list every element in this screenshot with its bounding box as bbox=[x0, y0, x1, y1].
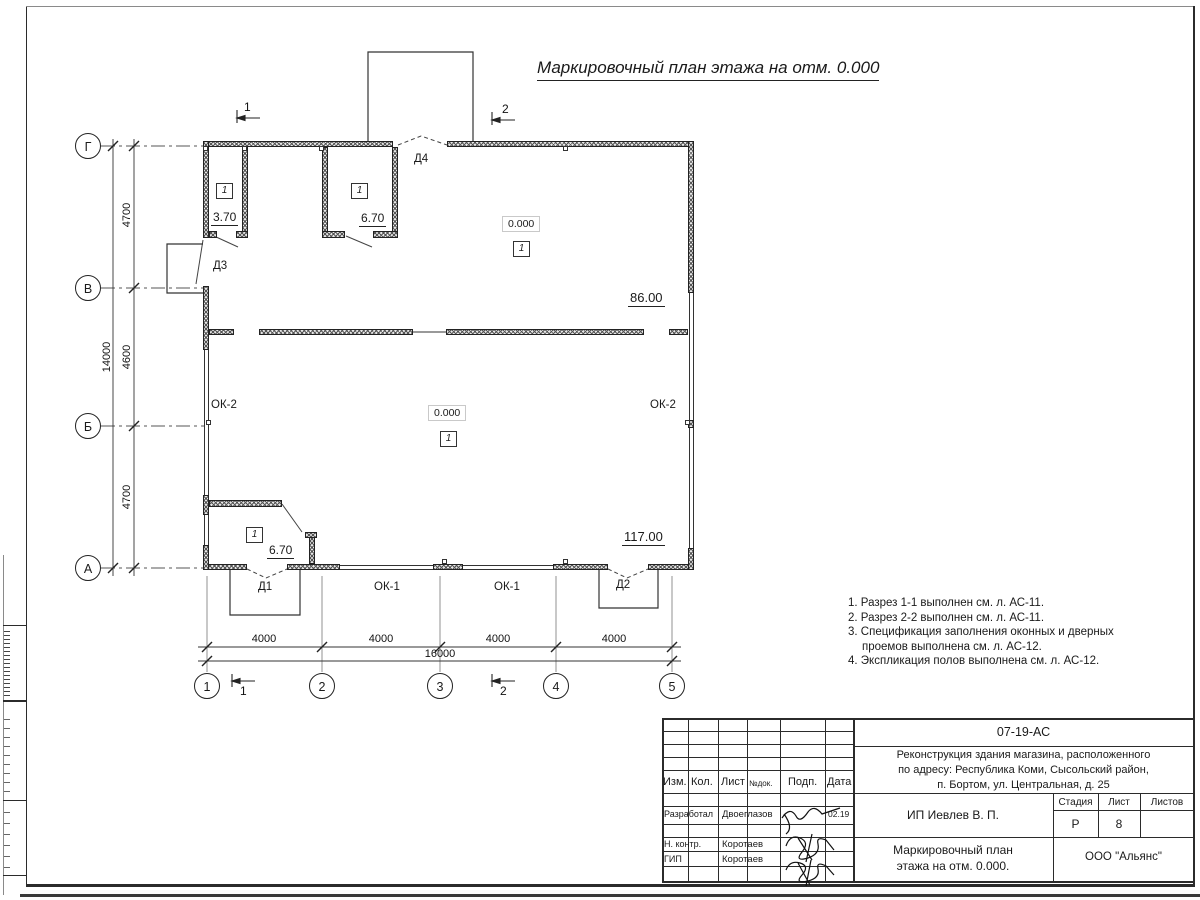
room-number-badge: 1 bbox=[351, 183, 368, 199]
window-ok2 bbox=[204, 515, 209, 545]
wall-segment bbox=[322, 147, 328, 238]
room-area: 6.70 bbox=[267, 543, 294, 559]
wall-segment bbox=[322, 231, 345, 238]
wall-segment bbox=[688, 548, 694, 570]
window-ok2 bbox=[689, 293, 694, 420]
tb-header-izm: Изм. bbox=[663, 776, 687, 788]
axis-bubble-3: 3 bbox=[427, 673, 453, 699]
door-label-d3: Д3 bbox=[213, 260, 227, 272]
wall-segment bbox=[392, 147, 398, 238]
wall-segment bbox=[259, 329, 413, 335]
elevation-mark: 0.000 bbox=[502, 216, 540, 232]
note-line: проемов выполнена см. л. АС-12. bbox=[848, 640, 1114, 655]
window-label-ok1: ОК-1 bbox=[374, 581, 400, 593]
wall-marker bbox=[442, 559, 447, 564]
tb-company: ООО "Альянс" bbox=[1053, 851, 1194, 863]
tb-drawing-title-line: этажа на отм. 0.000. bbox=[853, 859, 1053, 873]
wall-segment bbox=[669, 329, 688, 335]
tb-stage-value: Р bbox=[1053, 817, 1098, 831]
section-mark-number: 1 bbox=[240, 684, 247, 698]
tb-project-line: п. Бортом, ул. Центральная, д. 25 bbox=[853, 779, 1194, 791]
tb-line bbox=[662, 881, 1194, 883]
wall-segment bbox=[373, 231, 398, 238]
tb-header-ndok: №док. bbox=[749, 779, 772, 788]
note-line: 3. Спецификация заполнения оконных и две… bbox=[848, 625, 1114, 640]
tb-name: Коротаев bbox=[722, 854, 763, 865]
tb-line bbox=[662, 770, 853, 771]
axis-bubble-v: В bbox=[75, 275, 101, 301]
wall-segment bbox=[242, 147, 248, 238]
tb-stage-header: Стадия bbox=[1053, 797, 1098, 808]
tb-line bbox=[662, 757, 853, 758]
note-line: 1. Разрез 1-1 выполнен см. л. АС-11. bbox=[848, 596, 1114, 611]
room-area: 86.00 bbox=[628, 290, 665, 307]
section-mark-number: 2 bbox=[502, 102, 509, 116]
tb-client: ИП Иевлев В. П. bbox=[853, 808, 1053, 822]
tb-header-kol: Кол. bbox=[691, 776, 713, 788]
axis-bubble-2: 2 bbox=[309, 673, 335, 699]
elevation-mark: 0.000 bbox=[428, 405, 466, 421]
wall-segment bbox=[203, 286, 209, 350]
dim-4000: 4000 bbox=[480, 633, 516, 645]
axis-bubble-1: 1 bbox=[194, 673, 220, 699]
wall-segment bbox=[209, 231, 217, 238]
room-number-badge: 1 bbox=[216, 183, 233, 199]
dim-4700: 4700 bbox=[121, 195, 133, 235]
tb-line bbox=[718, 718, 719, 882]
section-mark-number: 2 bbox=[500, 684, 507, 698]
general-notes: 1. Разрез 1-1 выполнен см. л. АС-11. 2. … bbox=[848, 596, 1114, 669]
tb-line bbox=[662, 793, 1194, 794]
door-swing-lines bbox=[196, 236, 372, 532]
window-ok2 bbox=[689, 428, 694, 548]
tb-name: Двоеглазов bbox=[722, 809, 773, 820]
note-line: 4. Экспликация полов выполнена см. л. АС… bbox=[848, 654, 1114, 669]
dim-4600: 4600 bbox=[121, 337, 133, 377]
tb-drawing-title-line: Маркировочный план bbox=[853, 843, 1053, 857]
door-label-d4: Д4 bbox=[414, 153, 428, 165]
axis-bubble-5: 5 bbox=[659, 673, 685, 699]
tb-line bbox=[662, 744, 853, 745]
dim-16000: 16000 bbox=[418, 648, 462, 660]
door-leaf-dashed-lines bbox=[247, 136, 648, 578]
axis-bubble-a: А bbox=[75, 555, 101, 581]
tb-line bbox=[688, 718, 689, 882]
wall-segment bbox=[446, 329, 644, 335]
window-label-ok2: ОК-2 bbox=[650, 399, 676, 411]
wall-segment bbox=[209, 500, 282, 507]
window-ok1 bbox=[463, 565, 553, 570]
tb-sheets-header: Листов bbox=[1140, 797, 1194, 808]
wall-marker bbox=[203, 146, 208, 151]
room-area: 3.70 bbox=[211, 210, 238, 226]
wall-segment bbox=[203, 141, 209, 238]
tb-header-list: Лист bbox=[721, 776, 745, 788]
door-label-d1: Д1 bbox=[258, 581, 272, 593]
tb-doc-number: 07-19-АС bbox=[853, 725, 1194, 739]
dim-4000: 4000 bbox=[363, 633, 399, 645]
tb-header-podp: Подп. bbox=[788, 776, 817, 788]
room-number-badge: 1 bbox=[513, 241, 530, 257]
tb-line bbox=[662, 731, 853, 732]
room-number-badge: 1 bbox=[440, 431, 457, 447]
tb-name: Коротаев bbox=[722, 839, 763, 850]
tb-line bbox=[1053, 810, 1194, 811]
wall-segment bbox=[203, 545, 209, 570]
room-area: 117.00 bbox=[622, 529, 665, 546]
wall-marker bbox=[206, 420, 211, 425]
tb-sheet-header: Лист bbox=[1098, 797, 1140, 808]
dim-4000: 4000 bbox=[596, 633, 632, 645]
room-area: 6.70 bbox=[359, 211, 386, 227]
tb-line bbox=[853, 718, 855, 882]
dim-4000: 4000 bbox=[246, 633, 282, 645]
door-label-d2: Д2 bbox=[616, 579, 630, 591]
dim-14000: 14000 bbox=[101, 335, 113, 379]
window-ok1 bbox=[340, 565, 433, 570]
wall-segment bbox=[236, 231, 248, 238]
wall-segment bbox=[553, 564, 608, 570]
wall-segment bbox=[287, 564, 340, 570]
window-label-ok2: ОК-2 bbox=[211, 399, 237, 411]
wall-segment bbox=[203, 141, 393, 147]
wall-segment bbox=[433, 564, 463, 570]
wall-segment bbox=[305, 532, 317, 538]
window-label-ok1: ОК-1 bbox=[494, 581, 520, 593]
tb-role: Н. контр. bbox=[664, 839, 701, 849]
tb-line bbox=[853, 746, 1194, 747]
section-marks bbox=[232, 110, 515, 687]
note-line: 2. Разрез 2-2 выполнен см. л. АС-11. bbox=[848, 611, 1114, 626]
tb-sheet-value: 8 bbox=[1098, 817, 1140, 831]
wall-marker bbox=[563, 146, 568, 151]
axis-bubble-g: Г bbox=[75, 133, 101, 159]
tb-role: Разработал bbox=[664, 809, 713, 819]
tb-role: ГИП bbox=[664, 854, 682, 864]
wall-segment bbox=[203, 564, 247, 570]
drawing-sheet: Маркировочный план этажа на отм. 0.000 bbox=[0, 0, 1200, 900]
wall-segment bbox=[447, 141, 694, 147]
tb-header-data: Дата bbox=[827, 776, 851, 788]
axis-bubble-b: Б bbox=[75, 413, 101, 439]
tb-project-line: по адресу: Республика Коми, Сысольский р… bbox=[853, 764, 1194, 776]
wall-marker bbox=[242, 146, 247, 151]
room-number-badge: 1 bbox=[246, 527, 263, 543]
section-mark-number: 1 bbox=[244, 100, 251, 114]
wall-segment bbox=[209, 329, 234, 335]
wall-segment bbox=[688, 141, 694, 293]
tb-project-line: Реконструкция здания магазина, расположе… bbox=[853, 749, 1194, 761]
signature-scribbles bbox=[778, 800, 848, 890]
dim-4700: 4700 bbox=[121, 477, 133, 517]
axis-bubble-4: 4 bbox=[543, 673, 569, 699]
wall-marker bbox=[685, 420, 690, 425]
wall-marker bbox=[319, 146, 324, 151]
wall-marker bbox=[563, 559, 568, 564]
tb-line bbox=[662, 718, 1194, 720]
